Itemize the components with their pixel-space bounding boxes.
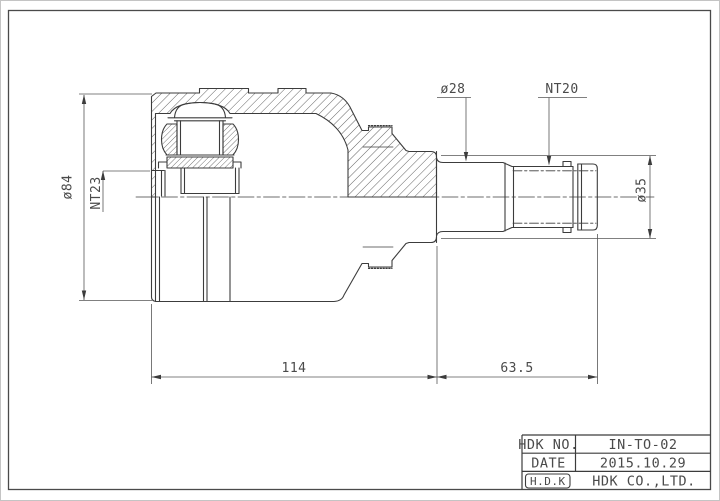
drawing-sheet: ø84 NT23 ø28 NT20 ø35 114 63.5 HDK NO. I… xyxy=(0,0,720,501)
drawing-date: 2015.10.29 xyxy=(600,455,686,471)
roller-wall-left xyxy=(162,124,178,155)
image-edge xyxy=(1,1,720,501)
tripod-roller-assembly xyxy=(152,103,242,197)
circlip-top xyxy=(563,162,571,167)
dim-stem-length-label: 63.5 xyxy=(500,361,533,376)
dim-housing-od-label: ø84 xyxy=(61,175,76,200)
dim-stem-spline-label: NT20 xyxy=(545,82,578,97)
housing-section xyxy=(152,89,437,198)
spider-arm-section xyxy=(167,157,233,168)
title-block-label-no: HDK NO. xyxy=(518,437,578,453)
roller-wall-right xyxy=(223,124,239,155)
joint-main-view xyxy=(136,89,654,302)
company-name: HDK CO.,LTD. xyxy=(592,474,696,490)
title-block-text: HDK NO. IN-TO-02 DATE 2015.10.29 H.D.K H… xyxy=(518,437,695,490)
dim-collar-dia-label: ø35 xyxy=(635,178,650,203)
sheet-frame xyxy=(9,11,711,490)
housing-outline-bottom xyxy=(152,197,437,302)
dim-shaft-dia-label: ø28 xyxy=(441,82,466,97)
cv-joint-drawing: ø84 NT23 ø28 NT20 ø35 114 63.5 HDK NO. I… xyxy=(0,0,720,501)
title-block-label-date: DATE xyxy=(531,455,566,471)
part-number: IN-TO-02 xyxy=(608,437,677,453)
circlip-bottom xyxy=(563,228,571,233)
hdk-logo-text: H.D.K xyxy=(530,475,566,488)
dim-inner-spline-label: NT23 xyxy=(89,176,104,209)
dim-body-length-label: 114 xyxy=(282,361,307,376)
roller-dome xyxy=(175,103,226,118)
